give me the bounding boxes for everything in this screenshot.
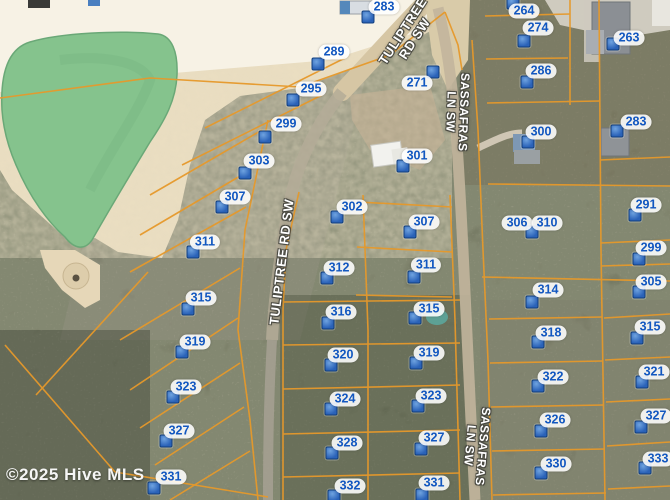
parcel-number-label[interactable]: 291 bbox=[631, 198, 662, 213]
parcel-number-label[interactable]: 303 bbox=[244, 154, 275, 169]
parcel-number-label[interactable]: 283 bbox=[369, 0, 400, 15]
map-overlays: 283 289 295 299 303 307 311 315 319 323 … bbox=[0, 0, 670, 500]
parcel-number-label[interactable]: 300 bbox=[526, 125, 557, 140]
parcel-number-label[interactable]: 315 bbox=[186, 291, 217, 306]
parcel-number-label[interactable]: 299 bbox=[271, 117, 302, 132]
parcel-number-label[interactable]: 311 bbox=[190, 235, 220, 250]
road-label-sassafras-ln-sw: SASSAFRASLN SW bbox=[460, 406, 493, 486]
parcel-number-label[interactable]: 323 bbox=[171, 380, 202, 395]
parcel-marker-icon[interactable] bbox=[518, 35, 531, 48]
parcel-marker-icon[interactable] bbox=[287, 94, 300, 107]
parcel-number-label[interactable]: 333 bbox=[643, 452, 670, 467]
aerial-parcel-map[interactable]: 283 289 295 299 303 307 311 315 319 323 … bbox=[0, 0, 670, 500]
parcel-marker-icon[interactable] bbox=[259, 131, 272, 144]
parcel-number-label[interactable]: 295 bbox=[296, 82, 327, 97]
parcel-number-label[interactable]: 306 bbox=[502, 216, 533, 231]
parcel-number-label[interactable]: 321 bbox=[639, 365, 670, 380]
parcel-number-label[interactable]: 299 bbox=[636, 241, 667, 256]
parcel-number-label[interactable]: 330 bbox=[541, 457, 572, 472]
parcel-number-label[interactable]: 301 bbox=[402, 149, 433, 164]
parcel-number-label[interactable]: 331 bbox=[156, 470, 187, 485]
parcel-number-label[interactable]: 318 bbox=[536, 326, 567, 341]
parcel-number-label[interactable]: 283 bbox=[621, 115, 652, 130]
parcel-number-label[interactable]: 327 bbox=[164, 424, 195, 439]
parcel-number-label[interactable]: 315 bbox=[635, 320, 666, 335]
parcel-number-label[interactable]: 319 bbox=[414, 346, 445, 361]
parcel-number-label[interactable]: 319 bbox=[180, 335, 211, 350]
road-label-sassafras-ln-sw: SASSAFRASLN SW bbox=[443, 72, 472, 151]
parcel-number-label[interactable]: 332 bbox=[335, 479, 366, 494]
parcel-number-label[interactable]: 305 bbox=[636, 275, 667, 290]
parcel-number-label[interactable]: 324 bbox=[330, 392, 361, 407]
parcel-number-label[interactable]: 322 bbox=[538, 370, 569, 385]
parcel-number-label[interactable]: 307 bbox=[220, 190, 251, 205]
parcel-number-label[interactable]: 328 bbox=[332, 436, 363, 451]
parcel-number-label[interactable]: 314 bbox=[533, 283, 564, 298]
parcel-number-label[interactable]: 312 bbox=[324, 261, 355, 276]
parcel-number-label[interactable]: 271 bbox=[402, 76, 433, 91]
parcel-number-label[interactable]: 316 bbox=[326, 305, 357, 320]
parcel-number-label[interactable]: 310 bbox=[532, 216, 563, 231]
parcel-number-label[interactable]: 264 bbox=[509, 4, 540, 19]
parcel-number-label[interactable]: 323 bbox=[416, 389, 447, 404]
parcel-number-label[interactable]: 263 bbox=[614, 31, 645, 46]
parcel-number-label[interactable]: 302 bbox=[337, 200, 368, 215]
parcel-number-label[interactable]: 274 bbox=[523, 21, 554, 36]
parcel-number-label[interactable]: 289 bbox=[319, 45, 350, 60]
parcel-number-label[interactable]: 307 bbox=[409, 215, 440, 230]
parcel-number-label[interactable]: 320 bbox=[328, 348, 359, 363]
parcel-number-label[interactable]: 311 bbox=[411, 258, 441, 273]
copyright-watermark: ©2025 Hive MLS bbox=[6, 465, 145, 485]
parcel-number-label[interactable]: 327 bbox=[641, 409, 670, 424]
parcel-number-label[interactable]: 331 bbox=[419, 476, 450, 491]
parcel-number-label[interactable]: 286 bbox=[526, 64, 557, 79]
parcel-marker-icon[interactable] bbox=[312, 58, 325, 71]
parcel-number-label[interactable]: 327 bbox=[419, 431, 450, 446]
parcel-number-label[interactable]: 326 bbox=[540, 413, 571, 428]
parcel-marker-icon[interactable] bbox=[526, 296, 539, 309]
road-label-tuliptree-rd-sw: TULIPTREE RD SW bbox=[267, 198, 296, 325]
parcel-number-label[interactable]: 315 bbox=[414, 302, 445, 317]
